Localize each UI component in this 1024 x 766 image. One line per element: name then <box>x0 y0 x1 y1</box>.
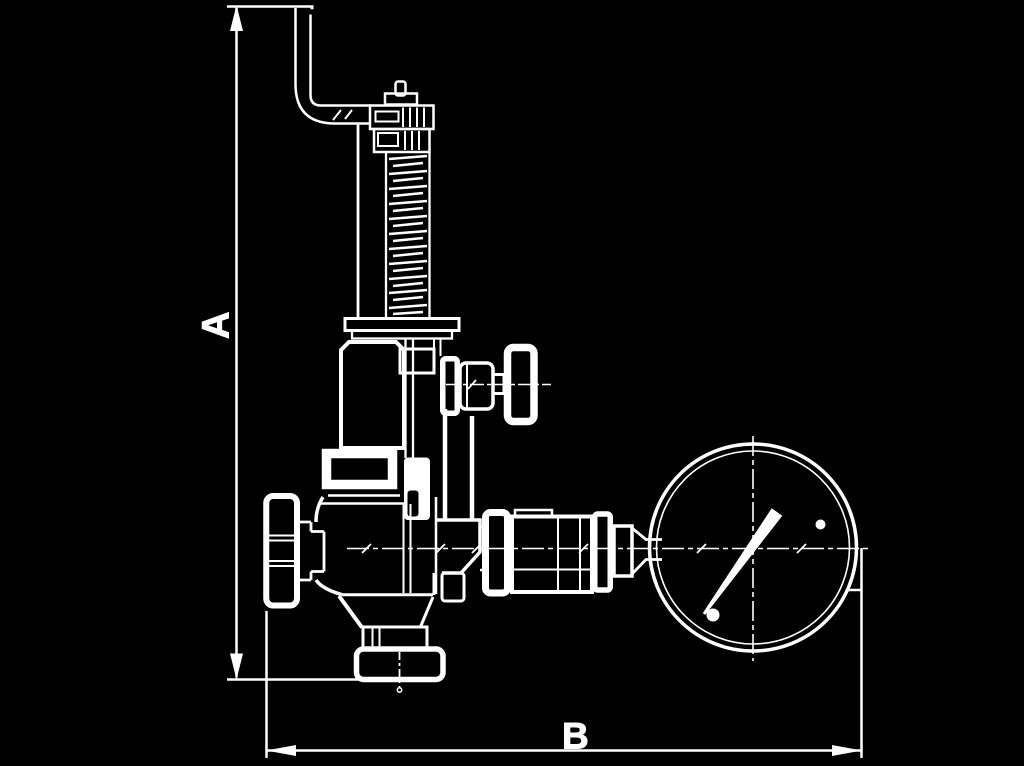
svg-text:B: B <box>562 716 589 757</box>
svg-text:A: A <box>196 312 238 339</box>
